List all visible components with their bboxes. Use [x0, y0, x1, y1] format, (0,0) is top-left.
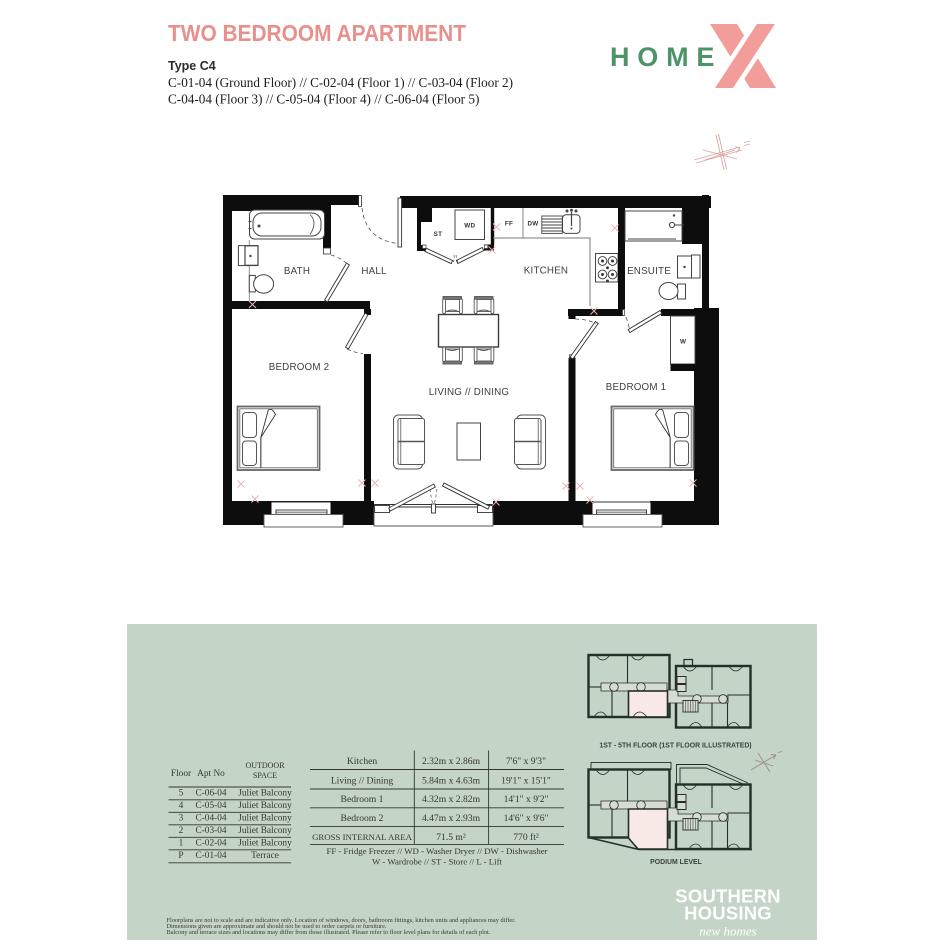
svg-text:C-03-04: C-03-04	[196, 826, 227, 836]
svg-text:C-04-04 (Floor 3) // C-05-04 (: C-04-04 (Floor 3) // C-05-04 (Floor 4) /…	[168, 92, 479, 107]
svg-text:C-01-04: C-01-04	[196, 851, 227, 861]
svg-text:C-06-04: C-06-04	[196, 789, 227, 799]
svg-text:5: 5	[179, 789, 184, 799]
svg-text:LIVING // DINING: LIVING // DINING	[429, 387, 510, 398]
svg-text:Kitchen: Kitchen	[347, 756, 378, 767]
svg-text:KITCHEN: KITCHEN	[524, 266, 568, 277]
svg-text:14'1" x 9'2": 14'1" x 9'2"	[504, 794, 549, 805]
svg-text:BATH: BATH	[284, 266, 310, 277]
svg-text:3: 3	[179, 814, 184, 824]
svg-text:Juliet Balcony: Juliet Balcony	[238, 826, 292, 836]
svg-text:4: 4	[179, 801, 184, 811]
svg-text:C-05-04: C-05-04	[196, 801, 227, 811]
svg-text:ENSUITE: ENSUITE	[627, 266, 671, 277]
svg-text:1: 1	[179, 839, 184, 849]
svg-text:HOUSING: HOUSING	[684, 903, 772, 924]
svg-text:Floor: Floor	[171, 769, 192, 779]
svg-text:P: P	[178, 851, 183, 861]
svg-text:FF: FF	[505, 221, 513, 228]
svg-text:SPACE: SPACE	[253, 771, 277, 780]
svg-text:19'1" x 15'1": 19'1" x 15'1"	[501, 776, 551, 787]
svg-text:OUTDOOR: OUTDOOR	[245, 761, 285, 770]
svg-text:Type C4: Type C4	[168, 59, 216, 73]
svg-text:2.32m x 2.86m: 2.32m x 2.86m	[422, 756, 481, 767]
svg-text:GROSS INTERNAL AREA: GROSS INTERNAL AREA	[312, 832, 413, 842]
svg-text:DW: DW	[527, 221, 538, 228]
svg-text:Juliet Balcony: Juliet Balcony	[238, 839, 292, 849]
svg-text:Living // Dining: Living // Dining	[331, 776, 394, 787]
svg-text:Apt No: Apt No	[197, 769, 225, 779]
svg-text:71.5 m²: 71.5 m²	[436, 832, 466, 843]
svg-text:BEDROOM 2: BEDROOM 2	[269, 362, 330, 373]
svg-text:7'6" x 9'3": 7'6" x 9'3"	[506, 756, 546, 767]
svg-text:W - Wardrobe // ST - Store: W - Wardrobe // ST - Store // L - Lift	[372, 857, 502, 867]
svg-text:FF - Fridge Freezer // WD -: FF - Fridge Freezer // WD - Washer Dryer…	[326, 846, 547, 856]
svg-text:WD: WD	[464, 223, 475, 230]
svg-text:Juliet Balcony: Juliet Balcony	[238, 789, 292, 799]
svg-text:BEDROOM 1: BEDROOM 1	[606, 382, 667, 393]
svg-text:ST: ST	[434, 231, 443, 238]
svg-text:2: 2	[179, 826, 184, 836]
svg-text:Juliet Balcony: Juliet Balcony	[238, 801, 292, 811]
svg-text:Terrace: Terrace	[251, 851, 279, 861]
svg-text:W: W	[680, 339, 686, 346]
svg-text:HOME: HOME	[610, 42, 722, 72]
svg-text:C-01-04 (Ground Floor) // C-02: C-01-04 (Ground Floor) // C-02-04 (Floor…	[168, 75, 513, 90]
svg-text:1ST - 5TH FLOOR (1ST FLOOR ILL: 1ST - 5TH FLOOR (1ST FLOOR ILLUSTRATED)	[599, 743, 751, 750]
svg-text:HALL: HALL	[361, 266, 387, 277]
svg-text:14'6" x 9'6": 14'6" x 9'6"	[504, 813, 549, 824]
svg-text:Juliet Balcony: Juliet Balcony	[238, 814, 292, 824]
svg-text:4.32m x 2.82m: 4.32m x 2.82m	[422, 794, 481, 805]
svg-text:Balcony and terrace sizes and: Balcony and terrace sizes and locations …	[167, 929, 491, 936]
svg-text:C-02-04: C-02-04	[196, 839, 227, 849]
svg-text:Bedroom 1: Bedroom 1	[341, 794, 384, 805]
svg-text:TWO BEDROOM APARTMENT: TWO BEDROOM APARTMENT	[168, 20, 466, 46]
svg-text:4.47m x 2.93m: 4.47m x 2.93m	[422, 813, 481, 824]
svg-text:Bedroom 2: Bedroom 2	[341, 813, 384, 824]
svg-text:new homes: new homes	[699, 924, 756, 939]
svg-text:770 ft²: 770 ft²	[513, 832, 539, 843]
svg-text:C-04-04: C-04-04	[196, 814, 227, 824]
svg-text:PODIUM LEVEL: PODIUM LEVEL	[650, 859, 702, 866]
svg-text:5.84m x 4.63m: 5.84m x 4.63m	[422, 776, 481, 787]
